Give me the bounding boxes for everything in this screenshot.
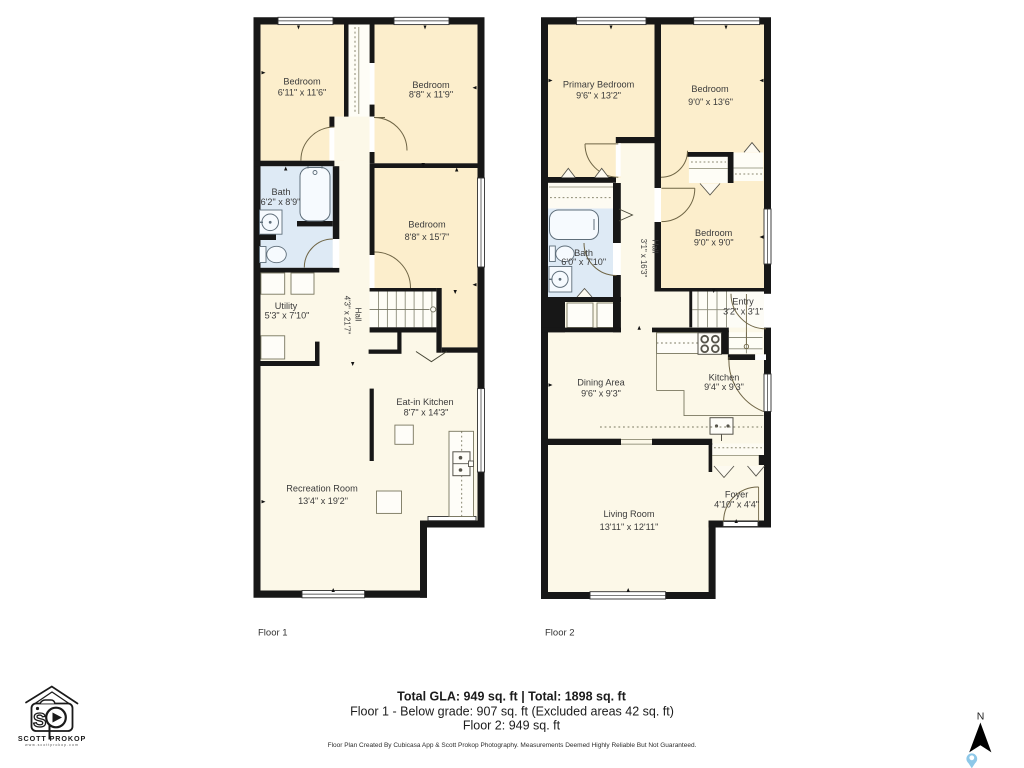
svg-text:6'11" x 11'6": 6'11" x 11'6": [278, 88, 327, 98]
svg-text:Bedroom: Bedroom: [412, 80, 450, 90]
svg-text:3'2" x 3'1": 3'2" x 3'1": [723, 307, 763, 317]
svg-text:4'3" x 21'7": 4'3" x 21'7": [343, 296, 352, 335]
svg-text:Floor 1: Floor 1: [258, 628, 288, 639]
svg-text:9'4" x 9'3": 9'4" x 9'3": [704, 382, 744, 392]
svg-text:Bath: Bath: [272, 187, 291, 197]
svg-text:5'3" x 7'10": 5'3" x 7'10": [265, 311, 310, 321]
svg-text:6'0" x 7'10": 6'0" x 7'10": [561, 257, 606, 267]
svg-text:N: N: [977, 711, 985, 723]
svg-text:9'0" x 9'0": 9'0" x 9'0": [694, 238, 734, 248]
svg-text:Eat-in Kitchen: Eat-in Kitchen: [396, 397, 453, 407]
svg-text:Floor 2: 949 sq. ft: Floor 2: 949 sq. ft: [463, 719, 561, 733]
svg-text:Bedroom: Bedroom: [691, 84, 729, 94]
svg-text:www.scottprokop.com: www.scottprokop.com: [25, 743, 79, 747]
svg-text:4'10" x 4'4": 4'10" x 4'4": [714, 500, 759, 510]
svg-text:Floor Plan Created By Cubicasa: Floor Plan Created By Cubicasa App & Sco…: [328, 742, 697, 749]
svg-text:Floor 2: Floor 2: [545, 628, 575, 639]
svg-text:Hall: Hall: [651, 240, 660, 254]
svg-text:Entry: Entry: [732, 297, 754, 307]
svg-text:Kitchen: Kitchen: [709, 373, 740, 383]
svg-text:Hall: Hall: [354, 308, 363, 322]
svg-text:3'1" x 16'3": 3'1" x 16'3": [639, 239, 648, 278]
svg-text:13'11" x 12'11": 13'11" x 12'11": [600, 522, 659, 532]
svg-text:Bedroom: Bedroom: [283, 77, 321, 87]
svg-text:Living Room: Living Room: [603, 509, 654, 519]
svg-text:Foyer: Foyer: [725, 490, 749, 500]
svg-text:S: S: [33, 710, 46, 732]
svg-text:13'4" x 19'2": 13'4" x 19'2": [298, 496, 348, 506]
svg-text:9'6" x 13'2": 9'6" x 13'2": [576, 91, 621, 101]
svg-text:Total GLA: 949 sq. ft | Total:: Total GLA: 949 sq. ft | Total: 1898 sq. …: [397, 690, 627, 704]
svg-text:Utility: Utility: [275, 301, 298, 311]
svg-text:8'8" x 15'7": 8'8" x 15'7": [405, 232, 450, 242]
svg-text:SCOTT PROKOP: SCOTT PROKOP: [18, 734, 86, 743]
svg-text:6'2" x 8'9": 6'2" x 8'9": [261, 197, 301, 207]
svg-text:Dining Area: Dining Area: [577, 378, 625, 388]
svg-text:Bedroom: Bedroom: [695, 228, 733, 238]
svg-text:Primary Bedroom: Primary Bedroom: [563, 80, 635, 90]
svg-text:Recreation Room: Recreation Room: [286, 484, 358, 494]
svg-text:Floor 1 - Below grade: 907 sq.: Floor 1 - Below grade: 907 sq. ft (Exclu…: [350, 705, 674, 719]
svg-text:8'7" x 14'3": 8'7" x 14'3": [404, 408, 449, 418]
svg-text:Bedroom: Bedroom: [408, 220, 446, 230]
svg-text:9'6" x 9'3": 9'6" x 9'3": [581, 389, 621, 399]
svg-text:9'0" x 13'6": 9'0" x 13'6": [688, 97, 733, 107]
svg-text:8'8" x 11'9": 8'8" x 11'9": [409, 90, 453, 100]
